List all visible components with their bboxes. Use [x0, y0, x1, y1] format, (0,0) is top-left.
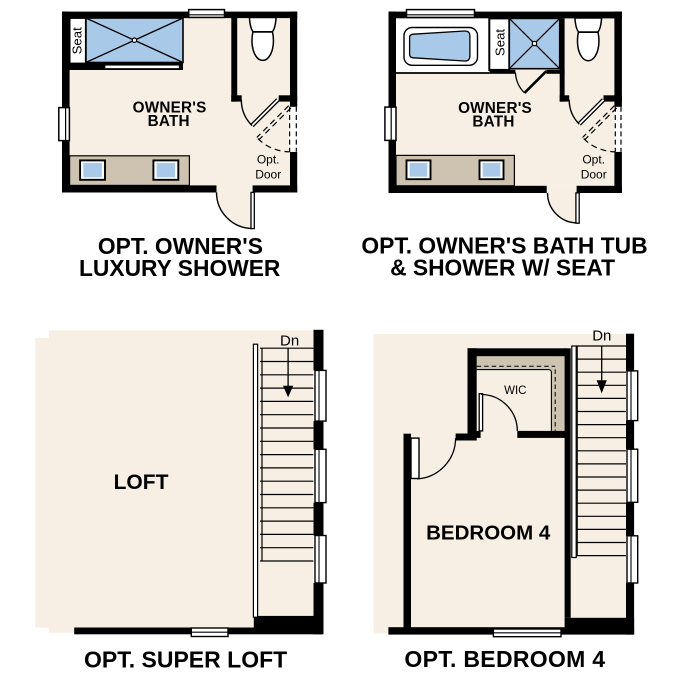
svg-text:BATH: BATH [472, 113, 514, 130]
svg-text:Dn: Dn [592, 328, 611, 345]
svg-text:BEDROOM 4: BEDROOM 4 [426, 522, 551, 545]
svg-text:Seat: Seat [492, 29, 507, 56]
svg-text:OPT. SUPER LOFT: OPT. SUPER LOFT [84, 647, 287, 673]
svg-text:Opt.: Opt. [582, 152, 605, 166]
svg-text:Door: Door [581, 167, 607, 181]
svg-text:Opt.: Opt. [257, 153, 280, 167]
svg-text:LOFT: LOFT [114, 471, 169, 494]
svg-text:WIC: WIC [504, 385, 526, 397]
svg-text:& SHOWER W/ SEAT: & SHOWER W/ SEAT [390, 255, 615, 281]
svg-text:Seat: Seat [69, 27, 84, 54]
svg-text:OPT. BEDROOM 4: OPT. BEDROOM 4 [404, 646, 605, 672]
svg-text:Door: Door [255, 168, 281, 182]
svg-text:BATH: BATH [148, 113, 190, 130]
svg-text:LUXURY SHOWER: LUXURY SHOWER [79, 255, 280, 281]
svg-text:Dn: Dn [280, 332, 299, 349]
